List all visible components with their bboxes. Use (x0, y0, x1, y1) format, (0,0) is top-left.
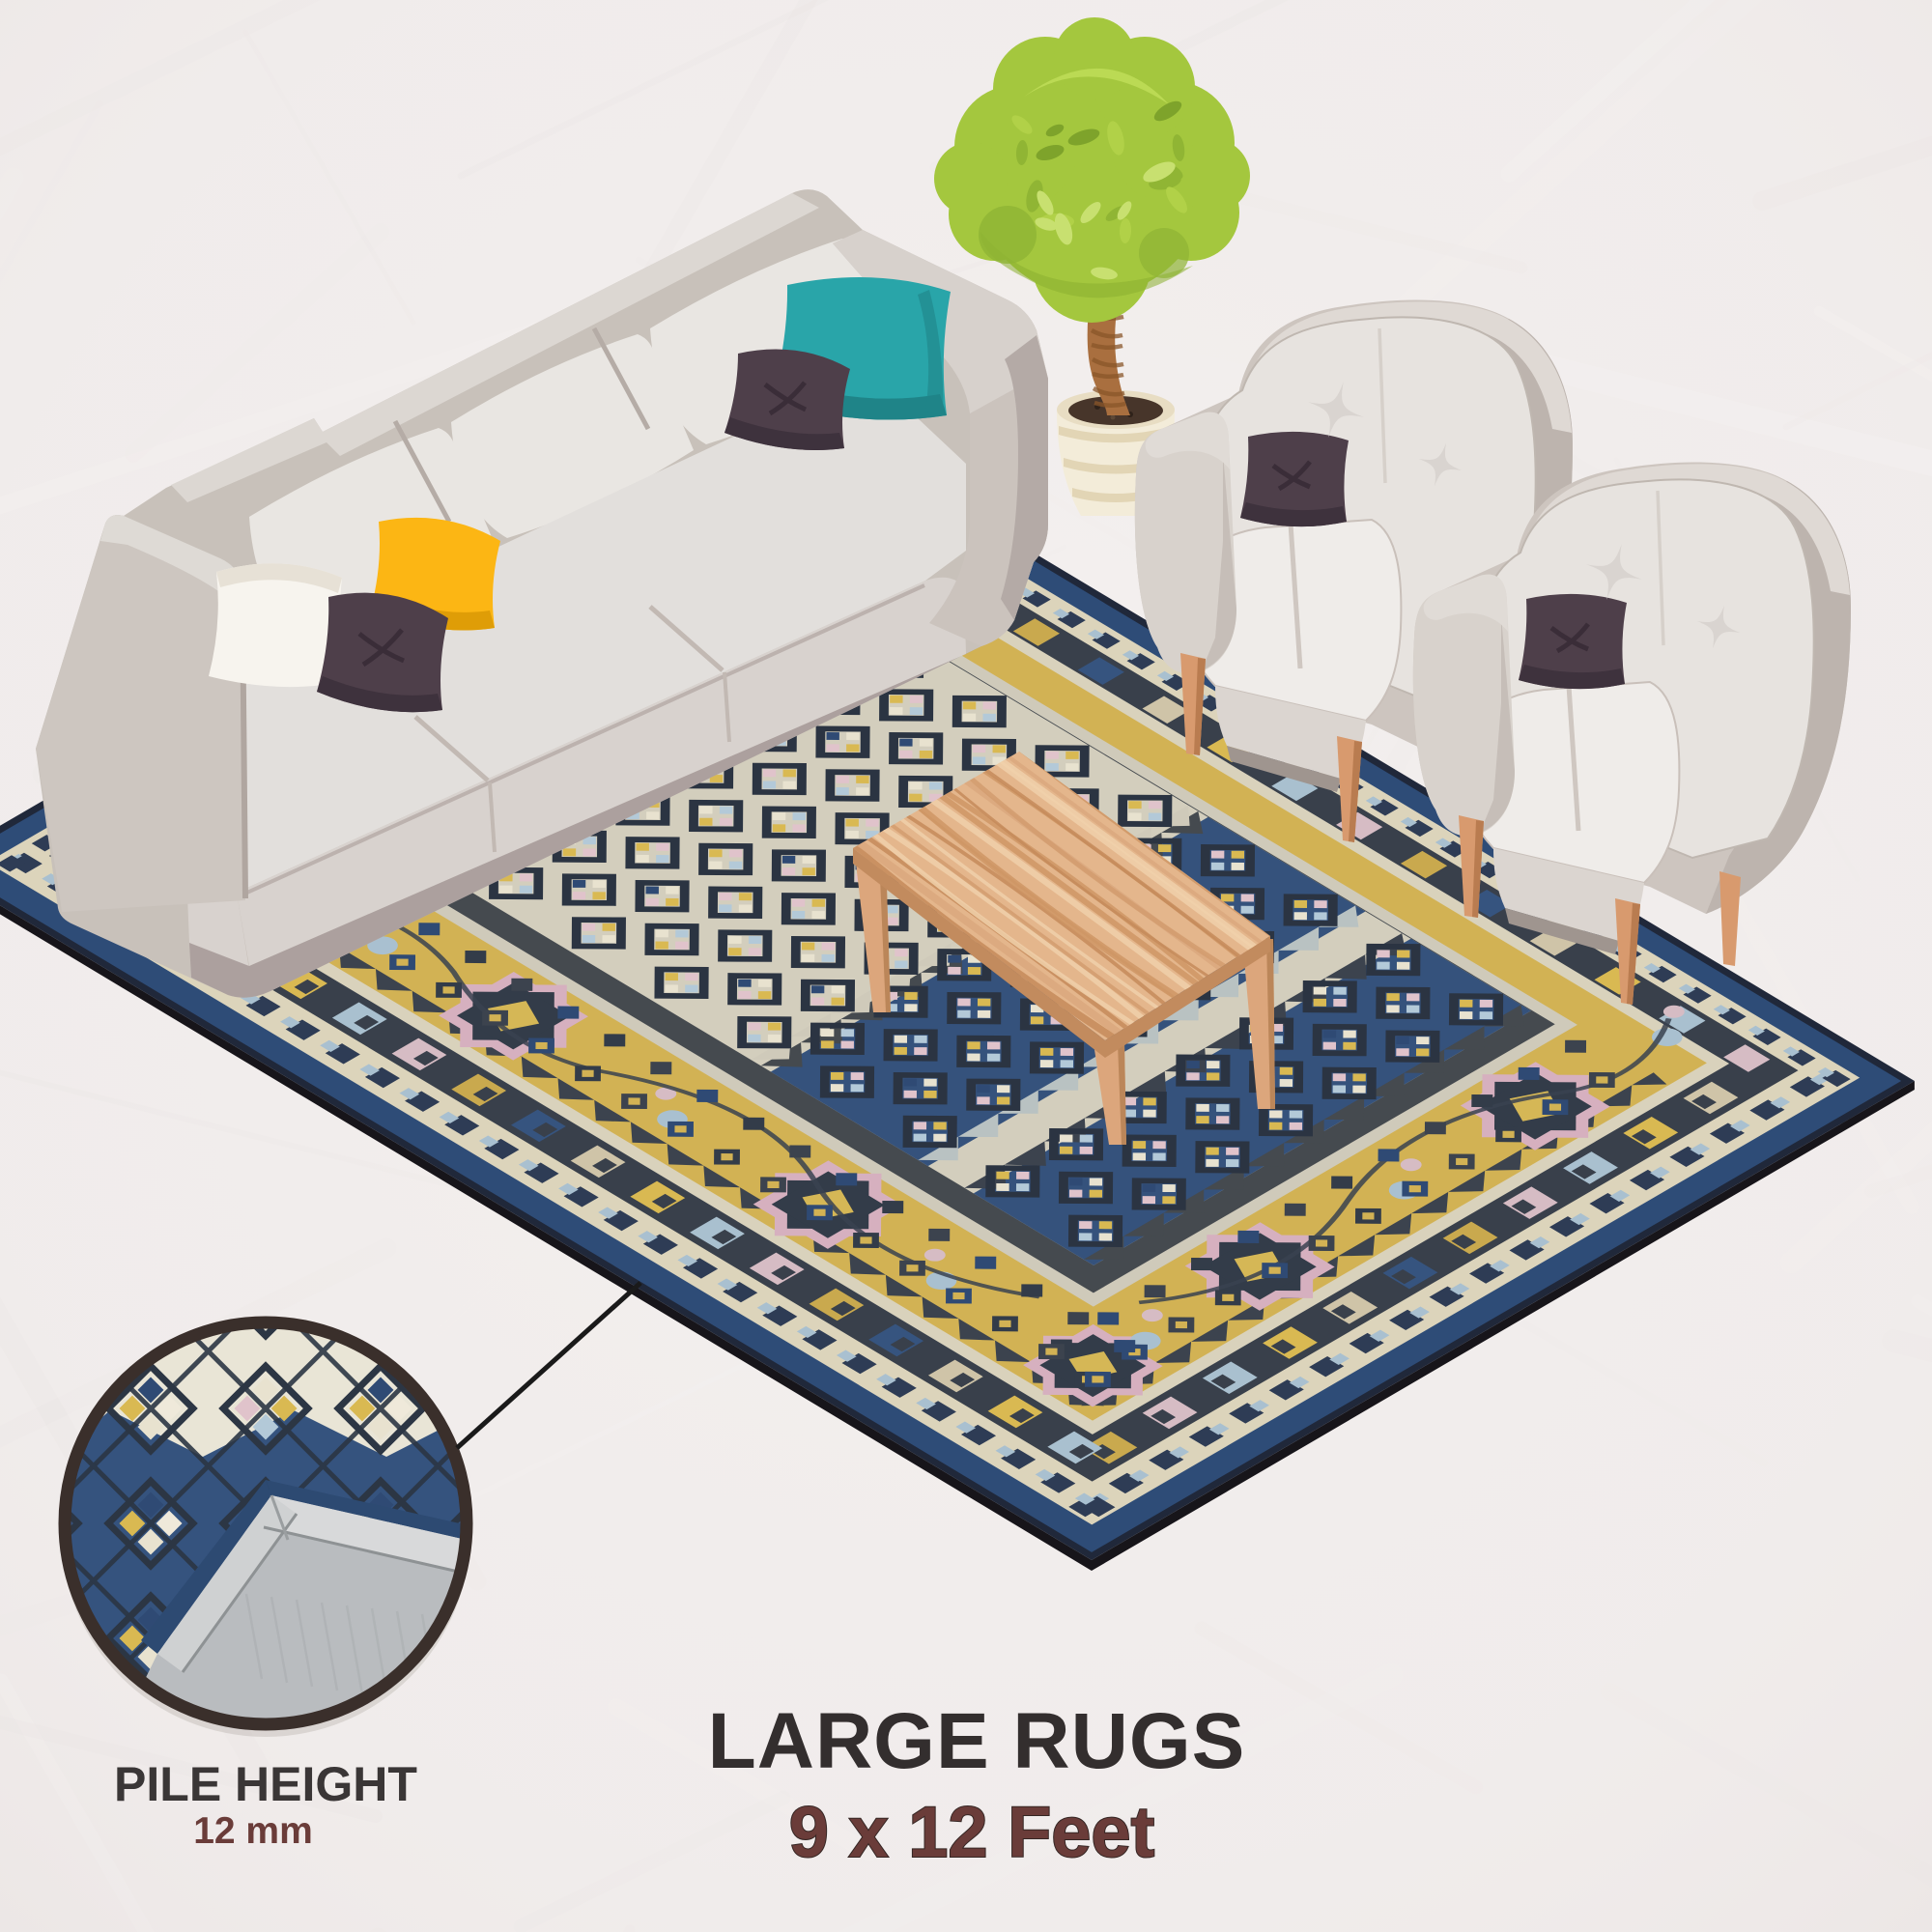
svg-text:LARGE RUGS: LARGE RUGS (708, 1697, 1246, 1785)
svg-text:9 x 12 Feet: 9 x 12 Feet (789, 1792, 1154, 1872)
svg-text:12 mm: 12 mm (193, 1810, 313, 1852)
svg-text:PILE HEIGHT: PILE HEIGHT (114, 1757, 417, 1811)
